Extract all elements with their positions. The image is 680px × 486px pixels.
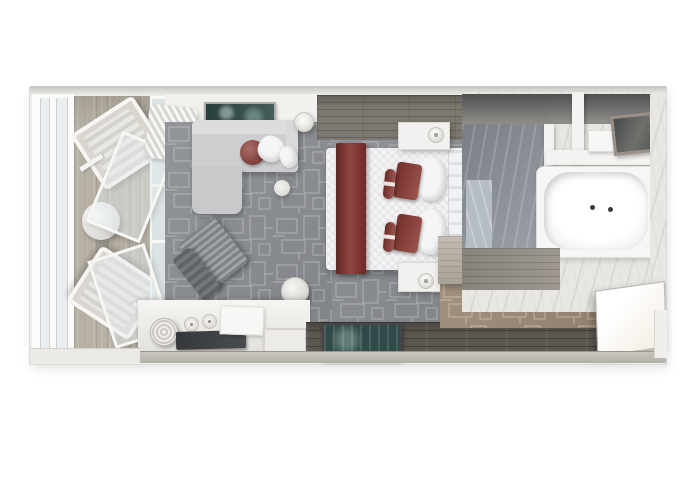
floor-lamp [294,112,314,132]
right-wall [654,310,667,358]
drinking-glass [184,317,199,332]
table-lamp [428,127,444,143]
bathroom-wood-walkway [462,248,560,290]
table-lamp [418,273,434,289]
marble-column [466,180,492,252]
amenity-box [220,305,265,336]
bar-tray [263,328,307,353]
round-side-table [274,180,290,196]
tub-faucet-handle [590,205,595,210]
bed-pillow-white [416,157,446,201]
stateroom-floorplan-render [0,0,680,486]
bed-runner [336,143,366,274]
tub-faucet-handle [608,207,613,212]
drinking-glass [202,314,217,329]
bathroom-ceiling-shadow [462,94,548,126]
window-glass [40,98,50,352]
bottom-wall [30,348,142,363]
window-glass [56,98,68,352]
bathtub-basin [544,172,648,250]
sofa-back [192,120,298,134]
bottom-wall [140,351,666,363]
ice-bucket [150,318,178,346]
